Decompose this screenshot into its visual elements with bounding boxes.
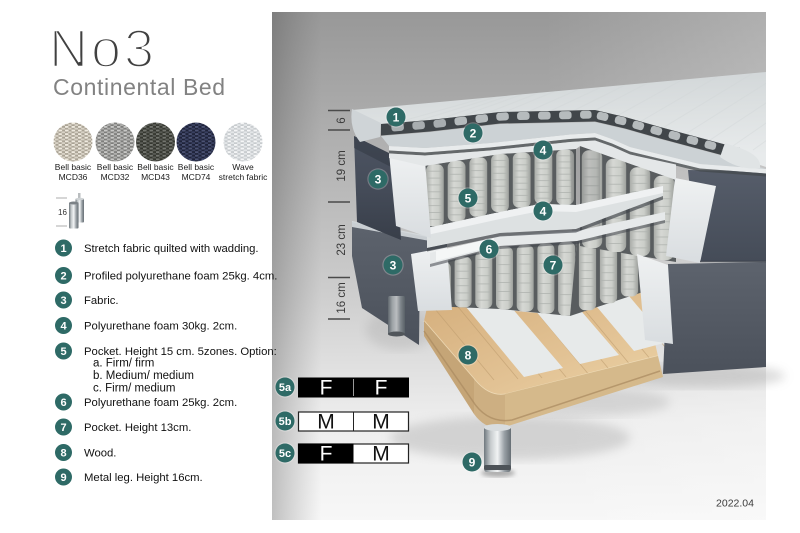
svg-text:Bell basic: Bell basic	[97, 162, 134, 172]
svg-text:F: F	[320, 377, 333, 400]
svg-text:9: 9	[469, 455, 476, 469]
svg-text:16: 16	[58, 208, 67, 217]
svg-text:5: 5	[60, 346, 66, 358]
svg-text:19 cm: 19 cm	[336, 150, 348, 181]
svg-text:F: F	[320, 443, 333, 466]
svg-text:c. Firm/ medium: c. Firm/ medium	[93, 383, 175, 395]
svg-text:Profiled polyurethane foam 25k: Profiled polyurethane foam 25kg. 4cm.	[84, 271, 277, 283]
svg-text:Pocket. Height 13cm.: Pocket. Height 13cm.	[84, 422, 191, 434]
svg-text:7: 7	[550, 258, 557, 272]
svg-text:2: 2	[470, 126, 477, 140]
svg-text:5c: 5c	[279, 448, 291, 460]
svg-text:7: 7	[60, 422, 66, 434]
svg-text:4: 4	[540, 143, 547, 157]
svg-text:3: 3	[60, 295, 66, 307]
svg-text:16 cm: 16 cm	[336, 282, 348, 313]
svg-text:3: 3	[375, 172, 382, 186]
svg-text:5a: 5a	[279, 382, 292, 394]
svg-text:Polyurethane foam 25kg. 2cm.: Polyurethane foam 25kg. 2cm.	[84, 397, 237, 409]
svg-text:6: 6	[486, 242, 493, 256]
svg-text:Pocket. Height 15 cm. 5zones.: Pocket. Height 15 cm. 5zones. Option:	[84, 346, 277, 358]
svg-text:Polyurethane foam 30kg. 2cm.: Polyurethane foam 30kg. 2cm.	[84, 321, 237, 333]
svg-text:b. Medium/ medium: b. Medium/ medium	[93, 370, 194, 382]
svg-text:Bell basic: Bell basic	[178, 162, 215, 172]
svg-text:8: 8	[60, 448, 66, 460]
svg-text:M: M	[372, 443, 390, 466]
svg-text:Wave: Wave	[232, 162, 254, 172]
svg-text:3: 3	[390, 258, 397, 272]
svg-text:M: M	[372, 411, 390, 434]
svg-text:MCD74: MCD74	[182, 172, 211, 182]
svg-text:M: M	[317, 411, 335, 434]
svg-text:4: 4	[540, 204, 547, 218]
svg-text:MCD36: MCD36	[59, 172, 88, 182]
svg-text:23 cm: 23 cm	[336, 224, 348, 255]
svg-text:1: 1	[393, 110, 400, 124]
svg-text:No3: No3	[49, 19, 157, 79]
svg-text:F: F	[375, 377, 388, 400]
svg-text:8: 8	[465, 348, 472, 362]
svg-text:4: 4	[60, 321, 67, 333]
svg-text:6: 6	[60, 397, 66, 409]
svg-text:Bell basic: Bell basic	[55, 162, 92, 172]
svg-text:Continental Bed: Continental Bed	[53, 74, 226, 100]
svg-text:Stretch fabric quilted with wa: Stretch fabric quilted with wadding.	[84, 243, 259, 255]
svg-text:Wood.: Wood.	[84, 448, 116, 460]
svg-text:6: 6	[336, 117, 348, 123]
svg-text:9: 9	[60, 472, 66, 484]
svg-text:MCD32: MCD32	[101, 172, 130, 182]
svg-text:Metal leg. Height 16cm.: Metal leg. Height 16cm.	[84, 472, 203, 484]
svg-text:2022.04: 2022.04	[716, 498, 754, 510]
svg-text:stretch fabric: stretch fabric	[219, 172, 268, 182]
svg-text:1: 1	[60, 243, 66, 255]
svg-text:5b: 5b	[279, 416, 292, 428]
svg-text:Fabric.: Fabric.	[84, 295, 119, 307]
svg-text:MCD43: MCD43	[141, 172, 170, 182]
svg-text:2: 2	[60, 271, 66, 283]
svg-text:5: 5	[465, 191, 472, 205]
svg-text:Bell basic: Bell basic	[137, 162, 174, 172]
svg-text:a. Firm/ firm: a. Firm/ firm	[93, 358, 154, 370]
